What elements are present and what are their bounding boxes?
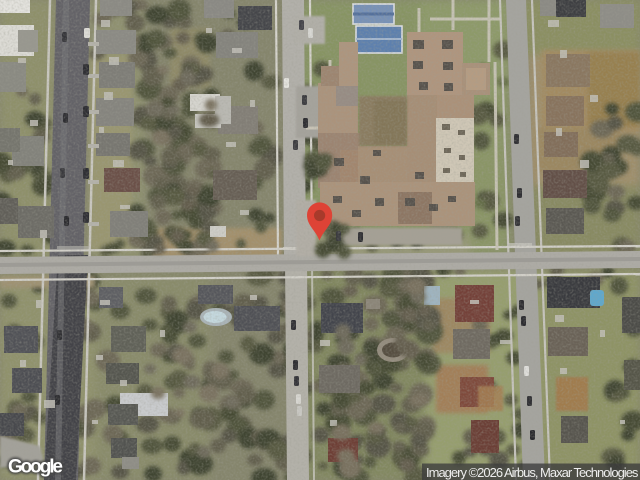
- svg-text:Imagery ©2026 Airbus, Maxar Te: Imagery ©2026 Airbus, Maxar Technologies: [426, 465, 639, 480]
- svg-text:Google: Google: [8, 457, 62, 478]
